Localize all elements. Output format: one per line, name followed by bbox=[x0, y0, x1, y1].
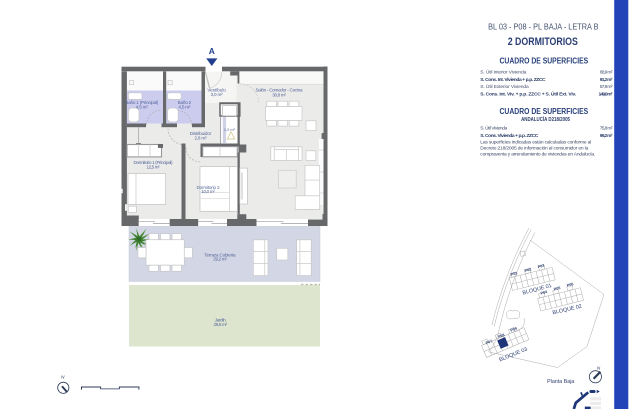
svg-text:compraventa y arrendamiento de: compraventa y arrendamiento de viviendas… bbox=[480, 151, 595, 157]
svg-text:68,9 m²: 68,9 m² bbox=[600, 70, 613, 76]
svg-text:91,2 m²: 91,2 m² bbox=[600, 77, 613, 83]
svg-text:S. Útil Interior Vivienda: S. Útil Interior Vivienda bbox=[480, 69, 526, 76]
svg-text:S. Útil Exterior Vivienda: S. Útil Exterior Vivienda bbox=[480, 83, 529, 90]
svg-text:30,8 m²: 30,8 m² bbox=[272, 93, 286, 98]
svg-text:BL 03 - P08 - PL BAJA - LETRA: BL 03 - P08 - PL BAJA - LETRA B bbox=[488, 23, 598, 32]
svg-text:Las superficies indicadas está: Las superficies indicadas están calculad… bbox=[480, 140, 591, 146]
svg-text:Decreto 218/2005 de informació: Decreto 218/2005 de información al consu… bbox=[480, 145, 588, 151]
svg-text:1,0 m²: 1,0 m² bbox=[224, 127, 236, 132]
svg-text:CUADRO DE SUPERFICIES: CUADRO DE SUPERFICIES bbox=[500, 106, 589, 116]
svg-text:3,0 m²: 3,0 m² bbox=[211, 92, 223, 97]
svg-text:29,6 m²: 29,6 m² bbox=[214, 322, 228, 327]
svg-text:S. Cons. Int. Viv. + p.p. ZZCC: S. Cons. Int. Viv. + p.p. ZZCC + S. Útil… bbox=[480, 91, 576, 98]
svg-text:ANDALUCÍA D218/2005: ANDALUCÍA D218/2005 bbox=[521, 115, 570, 123]
svg-text:4,5 m²: 4,5 m² bbox=[178, 104, 190, 109]
svg-text:2,6 m²: 2,6 m² bbox=[195, 135, 207, 140]
svg-text:149,0 m²: 149,0 m² bbox=[599, 92, 613, 98]
svg-text:S. Útil Vivienda: S. Útil Vivienda bbox=[480, 125, 507, 132]
svg-text:29,2 m²: 29,2 m² bbox=[213, 256, 227, 261]
svg-text:57,9 m²: 57,9 m² bbox=[600, 84, 613, 90]
svg-text:S. Cons. Int. Vivienda + p.p.: S. Cons. Int. Vivienda + p.p. ZZCC bbox=[480, 77, 546, 83]
svg-text:S. Cons. Vivienda + p.p. ZZCC: S. Cons. Vivienda + p.p. ZZCC bbox=[480, 133, 538, 139]
svg-text:10,0 m²: 10,0 m² bbox=[201, 189, 215, 194]
svg-text:99,2 m²: 99,2 m² bbox=[600, 133, 613, 139]
svg-text:A: A bbox=[209, 46, 215, 56]
svg-text:2 DORMITORIOS: 2 DORMITORIOS bbox=[508, 36, 579, 48]
svg-text:Planta Baja: Planta Baja bbox=[547, 379, 574, 385]
svg-text:CUADRO DE SUPERFICIES: CUADRO DE SUPERFICIES bbox=[500, 55, 589, 65]
svg-text:12,5 m²: 12,5 m² bbox=[147, 164, 160, 169]
svg-text:75,8 m²: 75,8 m² bbox=[600, 126, 613, 132]
svg-text:4,5 m²: 4,5 m² bbox=[136, 104, 148, 109]
